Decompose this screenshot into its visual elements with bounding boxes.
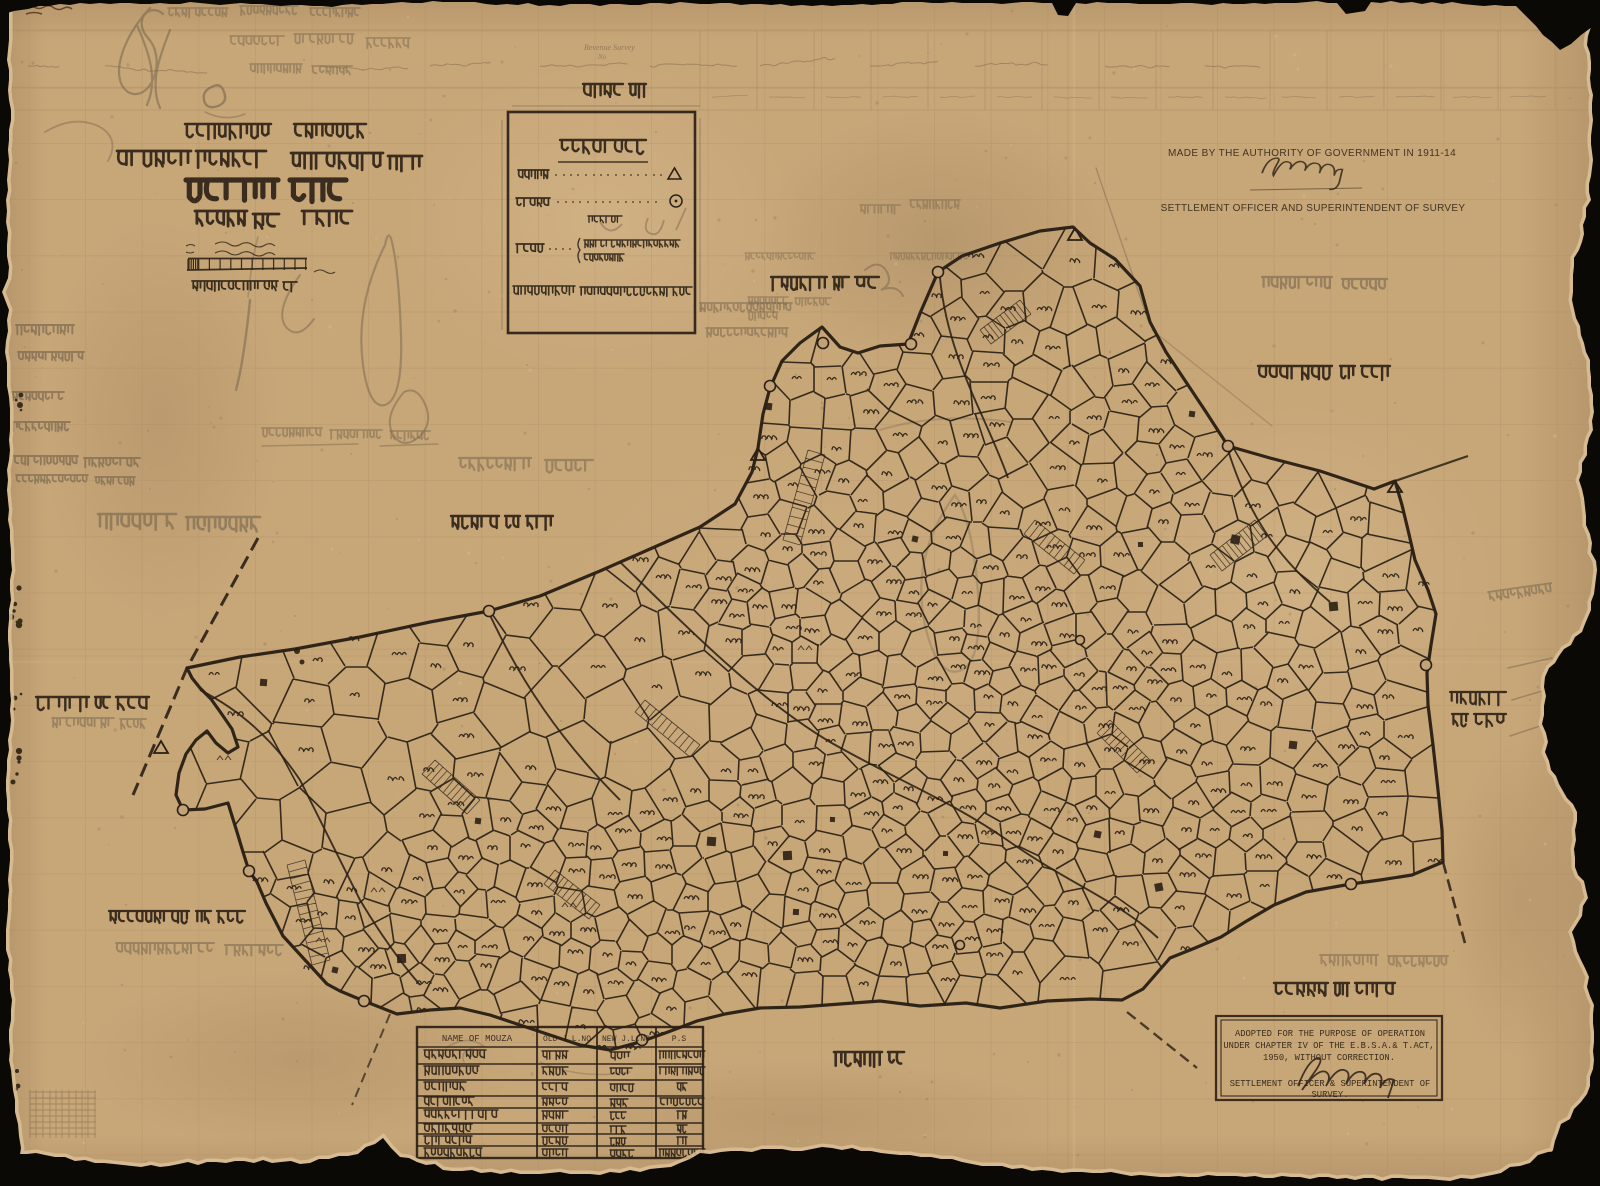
svg-text:No: No <box>597 53 607 61</box>
svg-text:NAME OF MOUZA: NAME OF MOUZA <box>442 1034 513 1044</box>
svg-text:NEW J.L.NO: NEW J.L.NO <box>602 1035 650 1044</box>
svg-text:1950, WITHOUT CORRECTION.: 1950, WITHOUT CORRECTION. <box>1263 1053 1395 1063</box>
svg-text:MADE BY THE AUTHORITY OF GOVER: MADE BY THE AUTHORITY OF GOVERNMENT IN 1… <box>1168 148 1456 159</box>
svg-text:Revenue Survey: Revenue Survey <box>583 43 635 52</box>
svg-text:ADOPTED FOR THE PURPOSE OF OPE: ADOPTED FOR THE PURPOSE OF OPERATION <box>1235 1029 1425 1039</box>
svg-text:UNDER CHAPTER IV OF THE E.B.S.: UNDER CHAPTER IV OF THE E.B.S.A.& T.ACT, <box>1223 1041 1434 1051</box>
svg-text:P.S: P.S <box>672 1035 687 1044</box>
svg-text:OLD J.L.NO: OLD J.L.NO <box>543 1035 591 1044</box>
svg-text:SETTLEMENT OFFICER AND SUPERIN: SETTLEMENT OFFICER AND SUPERINTENDENT OF… <box>1161 203 1466 214</box>
svg-text:SURVEY.: SURVEY. <box>1312 1090 1349 1100</box>
